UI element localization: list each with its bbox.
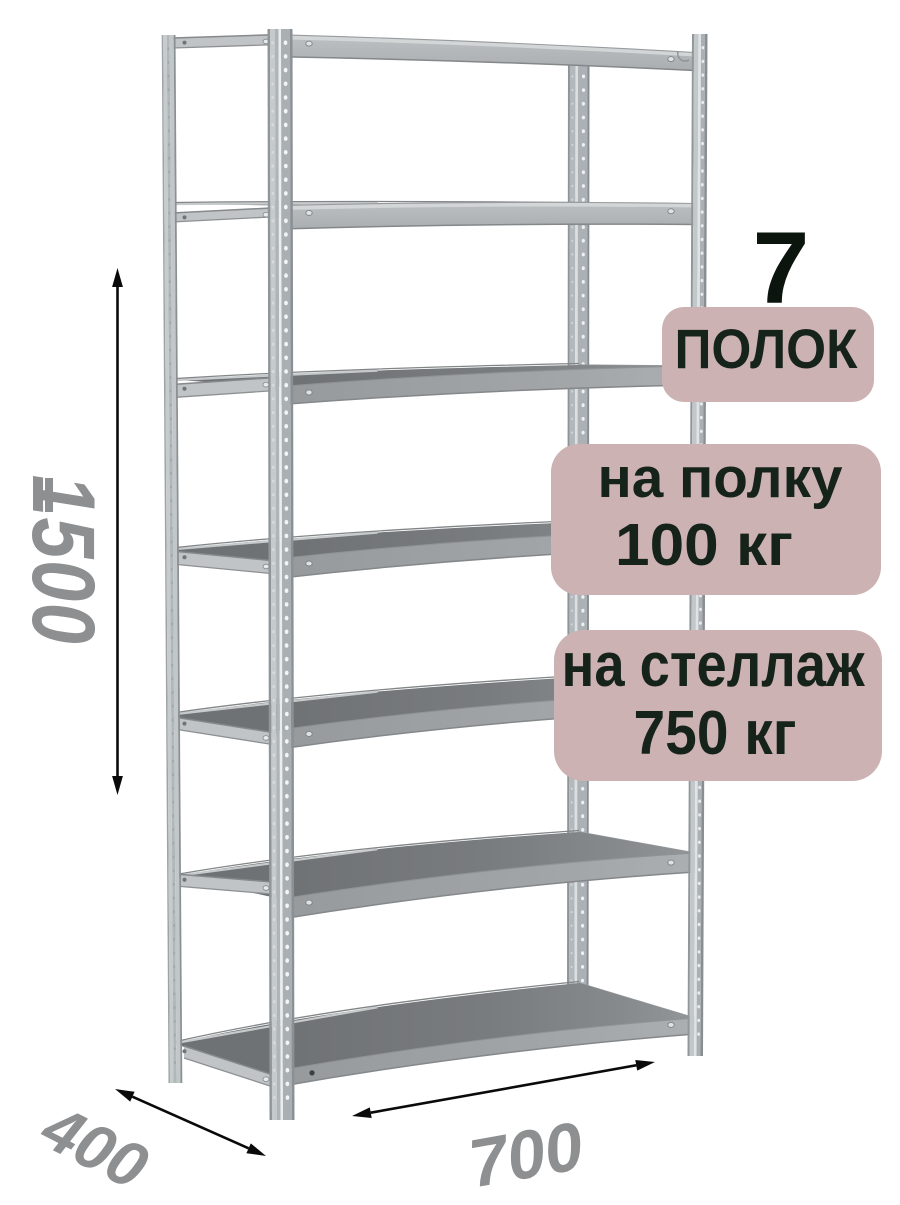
svg-text:ПОЛОК: ПОЛОК xyxy=(675,317,859,380)
svg-text:750 кг: 750 кг xyxy=(634,699,797,768)
svg-text:на стеллаж: на стеллаж xyxy=(562,631,866,700)
svg-text:100 кг: 100 кг xyxy=(615,512,793,578)
svg-text:700: 700 xyxy=(464,1108,589,1200)
svg-text:400: 400 xyxy=(29,1090,159,1200)
svg-text:1500: 1500 xyxy=(14,475,113,646)
svg-text:на полку: на полку xyxy=(598,446,843,510)
